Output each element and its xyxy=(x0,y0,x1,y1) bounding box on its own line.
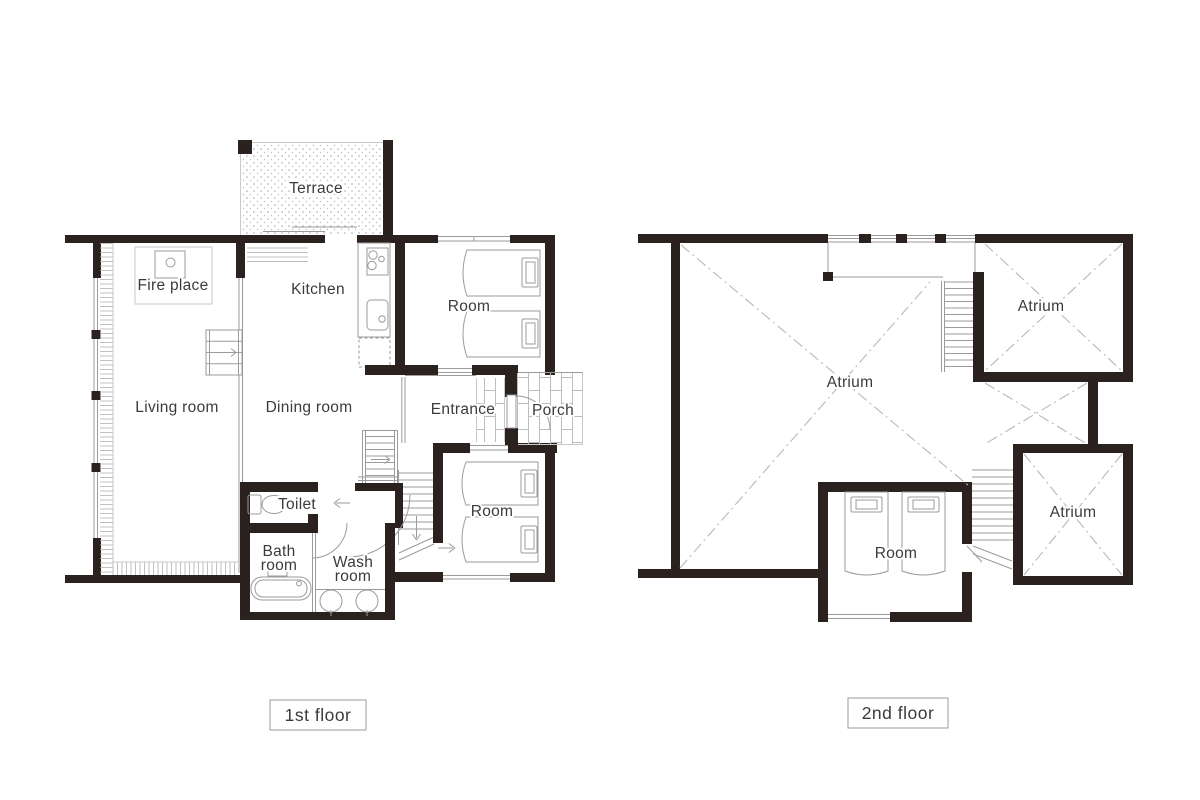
room-label-fireplace: Fire place xyxy=(137,277,208,294)
floor-caption-2f-label: 2nd floor xyxy=(862,703,935,723)
room-label-atrium-main: Atrium xyxy=(827,374,874,391)
bed-icon xyxy=(462,517,538,562)
second-floor-plan: Atrium Atrium Atrium Room xyxy=(638,234,1133,622)
stairs-icon xyxy=(972,470,1013,569)
floor-caption-2f: 2nd floor xyxy=(848,698,948,728)
living-steps-icon xyxy=(206,330,242,375)
step-strip xyxy=(247,244,308,262)
refrigerator-icon xyxy=(359,338,390,367)
sink-icon xyxy=(367,300,388,330)
floor-caption-1f: 1st floor xyxy=(270,700,366,730)
stairs-icon xyxy=(942,281,974,372)
room-label-atrium-south: Atrium xyxy=(1050,504,1097,521)
room-label-wash-2: room xyxy=(335,568,372,585)
room-label-bath-2: room xyxy=(261,557,298,574)
room-label-room-north: Room xyxy=(448,298,491,315)
window-band xyxy=(828,234,975,243)
bed-icon xyxy=(463,250,540,296)
kitchen-counter xyxy=(358,243,390,367)
void-cross-icon xyxy=(680,244,1122,575)
floor-plan-drawing: Terrace Fire place Kitchen Room Living r… xyxy=(0,0,1200,800)
room-label-atrium-north: Atrium xyxy=(1018,298,1065,315)
floor-plan-page: Terrace Fire place Kitchen Room Living r… xyxy=(0,0,1200,800)
ledge-lines xyxy=(823,243,975,281)
bed-icon xyxy=(463,311,540,357)
room-label-room-2f: Room xyxy=(875,545,918,562)
bed-icon xyxy=(902,492,945,575)
room-label-terrace: Terrace xyxy=(289,180,343,197)
stove-icon xyxy=(367,248,388,275)
room-label-dining: Dining room xyxy=(266,399,353,416)
room-label-kitchen: Kitchen xyxy=(291,281,345,298)
west-wall xyxy=(92,235,102,583)
south-wall xyxy=(65,575,245,583)
room-label-living: Living room xyxy=(135,399,218,416)
room-label-porch: Porch xyxy=(532,402,574,419)
bed-icon xyxy=(845,492,888,575)
first-floor-plan: Terrace Fire place Kitchen Room Living r… xyxy=(65,140,583,620)
room-label-toilet: Toilet xyxy=(278,496,316,513)
room-label-room-south: Room xyxy=(471,503,514,520)
north-wall xyxy=(65,235,555,243)
connecting-wall xyxy=(1088,382,1098,445)
room-label-entrance: Entrance xyxy=(431,401,495,418)
floor-caption-1f-label: 1st floor xyxy=(285,705,352,725)
kitchen-room-wall xyxy=(395,237,405,370)
bed-icon xyxy=(462,462,538,505)
fireplace-icon xyxy=(135,247,212,304)
window-icon xyxy=(438,237,510,242)
